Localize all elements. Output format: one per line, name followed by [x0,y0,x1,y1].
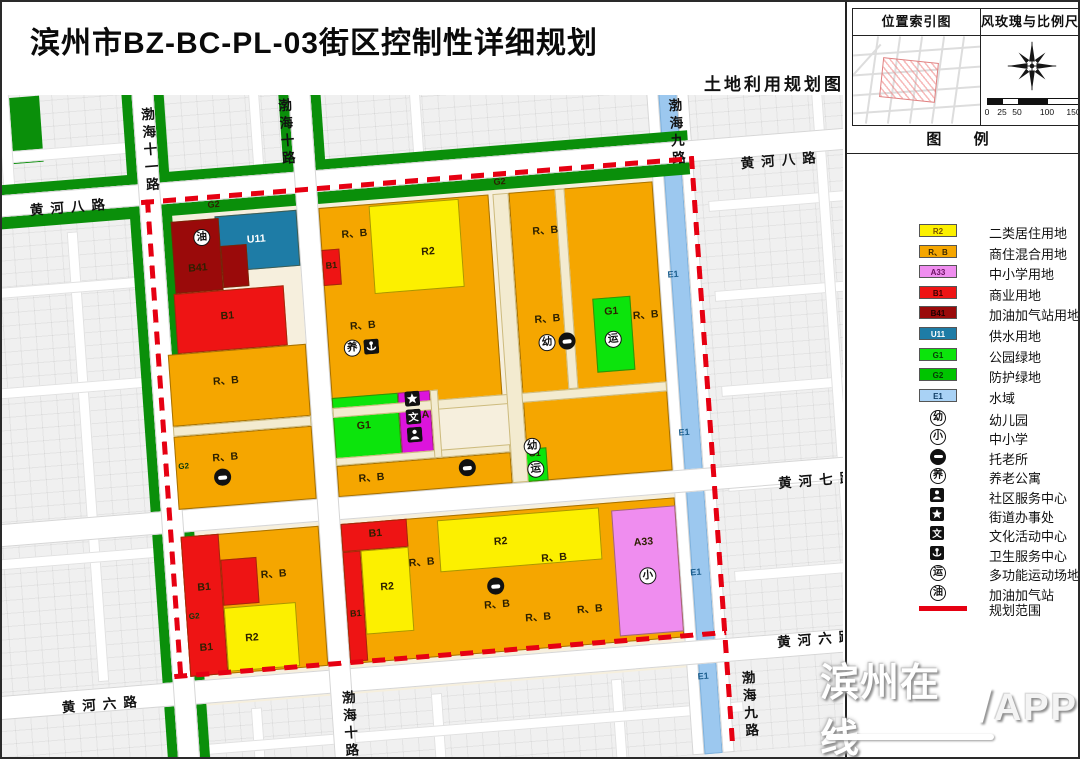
windrose-title: 风玫瑰与比例尺 [981,9,1079,36]
scale-bar [987,98,1079,105]
zone-label-b1: B1 [197,581,211,594]
culture-center-icon: 文 [930,526,944,540]
top-panels: 位置索引图 风玫瑰与比例尺 [852,8,1080,126]
culture-center-icon: 文 [405,409,421,425]
school-icon: 小 [930,429,946,445]
legend-symbol: 运 [930,565,946,581]
zone-label-a33: A33 [633,535,653,549]
wind-rose-icon [1006,40,1058,92]
planning-map-page: 滨州市BZ-BC-PL-03街区控制性详细规划 土地利用规划图 B41U11B1… [0,0,1080,759]
zone-label-r2: R2 [245,631,259,644]
legend-swatch: A33 [919,265,957,278]
legend-swatch: G2 [919,368,957,381]
svg-text:文: 文 [931,528,942,540]
street-office-icon [930,507,944,521]
sports-field-icon: 运 [930,565,946,581]
zone-label-g1: G1 [604,305,619,318]
street-office-icon [404,391,420,407]
legend-label: 商住混合用地 [989,244,1067,263]
zone-label-b1: B1 [368,527,382,540]
legend-row: 小中小学 [847,429,1080,445]
zone-label-g2: G2 [188,611,199,621]
scale-tick-label: 100 [1040,107,1054,117]
zone-label-rb: R、B [484,596,511,613]
land-use-map: B41U11B1R、BR、BR、BB1B1R2R、BR2B1R、BG1AR、BG… [2,95,843,759]
legend-row: R2二类居住用地 [847,223,1080,239]
legend-row: 文文化活动中心 [847,526,1080,542]
zone-label-rb: R、B [358,469,385,486]
zone-label-e1: E1 [678,427,690,438]
legend-swatch: B41 [919,306,957,319]
zone-label-e1: E1 [697,671,709,682]
legend-swatch: R2 [919,224,957,237]
legend-row: A33中小学用地 [847,264,1080,280]
legend-label: 规划范围 [989,600,1041,619]
legend-label: 商业用地 [989,285,1041,304]
zone-label-rb: R、B [341,225,368,242]
scale-bar-segment [1048,99,1078,104]
windrose-body: 02550100150M [981,36,1079,124]
elderly-apartment-icon: 养 [930,468,946,484]
zone-label-g2: G2 [493,176,506,187]
legend-symbol [930,449,946,465]
zone-b1 [220,557,259,606]
zone-b41 [221,244,250,288]
legend-label: 公园绿地 [989,347,1041,366]
legend-label: 社区服务中心 [989,488,1067,507]
watermark-app: APP [994,687,1078,730]
minimap-street [853,44,881,82]
legend-symbol [930,546,944,560]
legend-row: R、B商住混合用地 [847,244,1080,260]
zone-label-rb: R、B [213,372,240,389]
legend-row: 运多功能运动场地 [847,565,1080,581]
legend-row: U11供水用地 [847,326,1080,342]
legend-swatch: R、B [919,245,957,258]
legend-symbol: 养 [930,468,946,484]
legend-label: 托老所 [989,449,1028,468]
legend-row: E1水域 [847,388,1080,404]
nursery-icon [930,449,946,465]
zone-label-u11: U11 [246,232,266,245]
community-center-icon [930,488,944,502]
scale-tick-label: 25 [997,107,1006,117]
zone-label-b1: B1 [350,608,362,619]
legend-symbol: 幼 [930,410,946,426]
legend-symbol: 油 [930,585,946,601]
zone-label-e1: E1 [690,567,702,578]
kindergarten-icon: 幼 [930,410,946,426]
legend-label: 街道办事处 [989,507,1054,526]
zone-label-rb: R、B [525,608,552,625]
watermark-slash: / [979,679,992,733]
community-center-icon [407,427,423,443]
watermark-underline [826,734,994,740]
legend-symbol: 文 [930,526,944,540]
zone-label-rb: R、B [632,306,659,323]
legend-row: G2防护绿地 [847,367,1080,383]
location-index-panel: 位置索引图 [853,9,981,125]
legend-swatch: E1 [919,389,957,402]
zone-label-b1: B1 [199,641,213,654]
zone-label-b1: B1 [325,260,337,271]
scale-tick-label: 50 [1012,107,1021,117]
zone-label-rb: R、B [534,310,561,327]
zone-label-rb: R、B [576,600,603,617]
boundary-line-swatch [919,606,967,611]
windrose-panel: 风玫瑰与比例尺 02550100150M [981,9,1079,125]
legend-label: 防护绿地 [989,367,1041,386]
sidebar: 位置索引图 风玫瑰与比例尺 [845,2,1080,759]
health-center-icon [930,546,944,560]
zone-rb [174,426,317,510]
page-title: 滨州市BZ-BC-PL-03街区控制性详细规划 [30,18,598,62]
minimap-plan-area [879,57,939,103]
legend-title: 图 例 [847,126,1080,154]
zone-label-r2: R2 [421,245,435,258]
zone-r2 [369,199,465,294]
legend-label: 养老公寓 [989,468,1041,487]
legend-symbol: 小 [930,429,946,445]
legend-row: 街道办事处 [847,507,1080,523]
location-index-minimap [853,36,980,124]
legend-row: 社区服务中心 [847,488,1080,504]
scale-bar-segment [988,99,1003,104]
legend-label: 文化活动中心 [989,526,1067,545]
scale-bar-segment [1003,99,1018,104]
zone-label-g1: G1 [356,419,371,432]
zone-label-e1: E1 [667,269,679,280]
zone-label-rb: R、B [408,553,435,570]
zone-label-rb: R、B [212,448,239,465]
legend-label: 幼儿园 [989,410,1028,429]
legend-swatch: B1 [919,286,957,299]
legend-label: 供水用地 [989,326,1041,345]
svg-text:文: 文 [407,410,420,424]
zone-label-rb: R、B [532,222,559,239]
legend-label: 中小学 [989,429,1028,448]
zone-label-g2: G2 [207,199,220,210]
gas-station-icon: 油 [930,585,946,601]
minimap-street [853,104,980,115]
zone-label-b1: B1 [220,309,234,322]
scale-bar-segment [1018,99,1048,104]
legend-row: 油加油加气站 [847,585,1080,601]
legend-row: 养养老公寓 [847,468,1080,484]
zone-label-r2: R2 [380,580,394,593]
legend-symbol [930,488,944,502]
legend-label: 多功能运动场地 [989,565,1080,584]
legend-row-boundary: 规划范围 [847,600,1080,616]
legend-row: 卫生服务中心 [847,546,1080,562]
legend-row: B1商业用地 [847,285,1080,301]
health-center-icon [363,339,379,355]
zone-label-a: A [421,408,429,421]
legend-label: 水域 [989,388,1015,407]
scale-tick-label: 150M [1066,107,1079,117]
legend-label: 加油加气站用地 [989,305,1080,324]
scale-tick-label: 0 [985,107,990,117]
zone-label-rb: R、B [541,549,568,566]
zone-label-b41: B41 [188,261,208,275]
legend-row: 托老所 [847,449,1080,465]
zone-label-r2: R2 [494,535,508,548]
legend-label: 二类居住用地 [989,223,1067,242]
watermark-text: 滨州在线 [820,652,977,759]
zone-label-rb: R、B [349,317,376,334]
location-index-title: 位置索引图 [853,9,980,36]
zone-label-rb: R、B [260,565,287,582]
zone-r2 [224,602,300,672]
legend-row: 幼幼儿园 [847,410,1080,426]
legend-symbol [930,507,944,521]
watermark: 滨州在线 / APP [820,670,1078,746]
legend-swatch: G1 [919,348,957,361]
map-subtitle: 土地利用规划图 [704,70,844,95]
legend-row: G1公园绿地 [847,347,1080,363]
legend-swatch: U11 [919,327,957,340]
zone-label-g2: G2 [178,461,189,471]
legend-label: 卫生服务中心 [989,546,1067,565]
legend-row: B41加油加气站用地 [847,305,1080,321]
legend-label: 中小学用地 [989,264,1054,283]
